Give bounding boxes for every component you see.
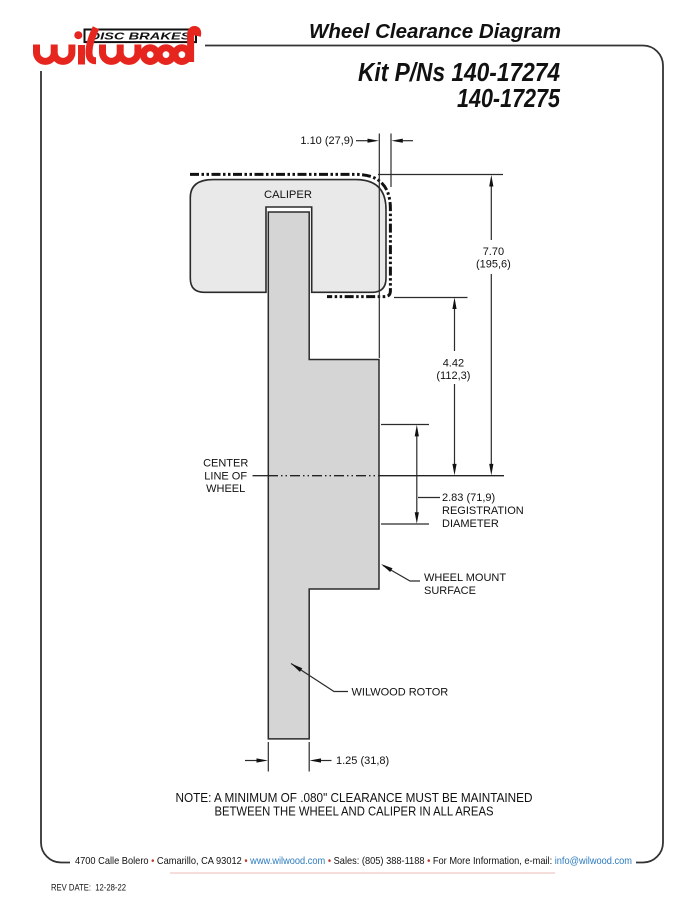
svg-text:WHEEL MOUNT: WHEEL MOUNT [424, 572, 506, 584]
svg-text:LINE OF: LINE OF [204, 470, 247, 482]
svg-text:SURFACE: SURFACE [424, 585, 476, 597]
svg-text:CENTER: CENTER [203, 458, 248, 470]
svg-text:Wheel Clearance Diagram: Wheel Clearance Diagram [309, 20, 561, 43]
svg-text:DISC BRAKES: DISC BRAKES [90, 31, 191, 43]
svg-text:WHEEL: WHEEL [206, 483, 245, 495]
svg-text:140-17275: 140-17275 [457, 85, 561, 113]
svg-text:4700 Calle Bolero • Camarillo,: 4700 Calle Bolero • Camarillo, CA 93012 … [75, 856, 632, 867]
svg-text:1.25 (31,8): 1.25 (31,8) [336, 755, 389, 767]
svg-text:1.10 (27,9): 1.10 (27,9) [300, 135, 353, 147]
svg-text:REV DATE: 12-28-22: REV DATE: 12-28-22 [51, 882, 126, 892]
svg-text:(112,3): (112,3) [436, 370, 470, 382]
svg-text:REGISTRATION: REGISTRATION [442, 505, 524, 517]
svg-text:CALIPER: CALIPER [264, 189, 312, 201]
svg-text:WILWOOD ROTOR: WILWOOD ROTOR [352, 687, 449, 699]
svg-text:2.83 (71,9): 2.83 (71,9) [442, 492, 495, 504]
svg-text:DIAMETER: DIAMETER [442, 518, 499, 530]
svg-text:Kit P/Ns 140-17274: Kit P/Ns 140-17274 [358, 59, 560, 87]
svg-text:(195,6): (195,6) [476, 259, 511, 271]
svg-text:NOTE: A MINIMUM OF .080" CLEAR: NOTE: A MINIMUM OF .080" CLEARANCE MUST … [176, 790, 533, 805]
svg-text:BETWEEN THE WHEEL AND CALIPER: BETWEEN THE WHEEL AND CALIPER IN ALL ARE… [215, 804, 494, 819]
svg-text:4.42: 4.42 [443, 358, 464, 370]
svg-text:7.70: 7.70 [483, 246, 504, 258]
